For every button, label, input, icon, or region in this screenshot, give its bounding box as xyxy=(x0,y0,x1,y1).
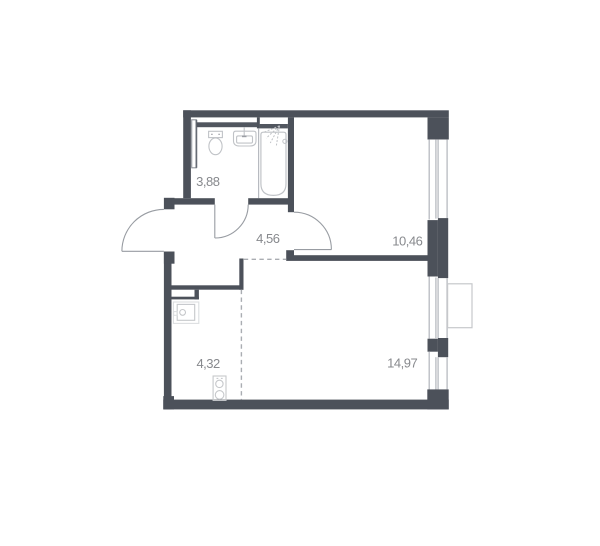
svg-text:4,56: 4,56 xyxy=(256,231,280,246)
svg-text:3,88: 3,88 xyxy=(196,174,220,189)
svg-text:10,46: 10,46 xyxy=(392,233,422,248)
svg-text:4,32: 4,32 xyxy=(196,356,220,371)
svg-text:14,97: 14,97 xyxy=(387,356,417,371)
